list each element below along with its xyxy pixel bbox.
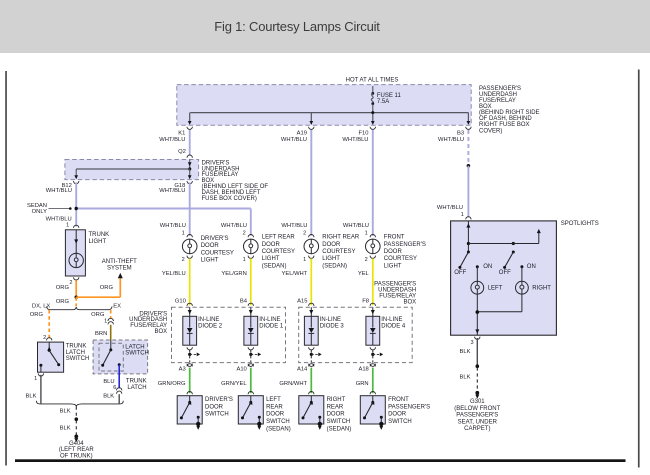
svg-text:LEFT: LEFT bbox=[488, 285, 503, 291]
svg-text:YEL: YEL bbox=[358, 271, 370, 277]
svg-text:GRN: GRN bbox=[356, 381, 369, 387]
svg-text:IN-LINE: IN-LINE bbox=[381, 317, 402, 323]
svg-text:(SEDAN): (SEDAN) bbox=[327, 426, 352, 432]
svg-text:WHT/BLU: WHT/BLU bbox=[159, 137, 185, 143]
svg-text:TRUNK: TRUNK bbox=[126, 379, 147, 385]
svg-text:G404: G404 bbox=[69, 441, 84, 447]
svg-text:LIGHT: LIGHT bbox=[322, 256, 340, 262]
svg-text:A14: A14 bbox=[297, 367, 308, 373]
svg-text:LIGHT: LIGHT bbox=[89, 239, 107, 245]
svg-text:WHT/BLU: WHT/BLU bbox=[437, 205, 463, 211]
svg-text:PASSENGER'S: PASSENGER'S bbox=[384, 242, 426, 248]
svg-text:GRN/WHT: GRN/WHT bbox=[279, 381, 307, 387]
svg-text:OFF: OFF bbox=[454, 270, 466, 276]
svg-text:DOOR: DOOR bbox=[327, 412, 346, 418]
svg-text:IN-LINE: IN-LINE bbox=[198, 317, 219, 323]
svg-text:DIODE 4: DIODE 4 bbox=[381, 324, 406, 330]
svg-text:SWITCH: SWITCH bbox=[66, 356, 90, 362]
svg-text:(SEDAN): (SEDAN) bbox=[266, 426, 291, 432]
svg-text:2: 2 bbox=[365, 257, 368, 263]
svg-text:WHT/BLU: WHT/BLU bbox=[160, 223, 186, 229]
svg-text:(BELOW FRONT: (BELOW FRONT bbox=[454, 406, 500, 412]
svg-text:WHT/BLU: WHT/BLU bbox=[281, 137, 307, 143]
svg-text:7.5A: 7.5A bbox=[377, 99, 389, 105]
svg-text:GRN/ORG: GRN/ORG bbox=[158, 381, 186, 387]
svg-text:RIGHT REAR: RIGHT REAR bbox=[322, 235, 360, 241]
svg-text:SWITCH: SWITCH bbox=[266, 419, 290, 425]
svg-text:WHT/BLU: WHT/BLU bbox=[342, 137, 368, 143]
svg-text:ORG: ORG bbox=[56, 299, 70, 305]
svg-text:WHT/BLU: WHT/BLU bbox=[343, 223, 369, 229]
svg-text:(SEDAN): (SEDAN) bbox=[322, 263, 347, 269]
svg-text:HOT AT ALL TIMES: HOT AT ALL TIMES bbox=[346, 77, 399, 83]
svg-text:GRN/YEL: GRN/YEL bbox=[221, 381, 247, 387]
svg-text:SWITCH: SWITCH bbox=[205, 412, 229, 418]
svg-text:ANTI-THEFT: ANTI-THEFT bbox=[102, 259, 137, 265]
svg-text:Q2: Q2 bbox=[178, 149, 186, 155]
svg-text:REAR: REAR bbox=[266, 404, 283, 410]
svg-text:1: 1 bbox=[365, 230, 368, 236]
svg-text:F8: F8 bbox=[362, 299, 369, 305]
svg-text:IN-LINE: IN-LINE bbox=[320, 317, 341, 323]
svg-text:WHT/BLU: WHT/BLU bbox=[46, 188, 72, 194]
svg-text:CARPET): CARPET) bbox=[464, 426, 490, 432]
svg-text:EX: EX bbox=[113, 304, 121, 310]
svg-text:OFF: OFF bbox=[499, 270, 511, 276]
svg-text:SWITCH: SWITCH bbox=[388, 419, 412, 425]
svg-text:BLK: BLK bbox=[103, 394, 114, 400]
svg-text:A10: A10 bbox=[236, 367, 246, 373]
svg-text:WHT/BLU: WHT/BLU bbox=[281, 223, 307, 229]
svg-text:DOOR: DOOR bbox=[388, 412, 407, 418]
svg-text:A19: A19 bbox=[297, 130, 307, 136]
svg-text:BLK: BLK bbox=[26, 393, 37, 399]
svg-text:TRUNK: TRUNK bbox=[89, 232, 110, 238]
svg-text:A18: A18 bbox=[358, 367, 368, 373]
svg-text:DOOR: DOOR bbox=[384, 249, 403, 255]
svg-text:BLK: BLK bbox=[460, 374, 471, 380]
svg-text:YEL/GRN: YEL/GRN bbox=[221, 271, 246, 277]
svg-text:DIODE 2: DIODE 2 bbox=[198, 324, 223, 330]
svg-text:PASSENGER'S: PASSENGER'S bbox=[456, 413, 498, 419]
svg-text:COURTESY: COURTESY bbox=[201, 250, 234, 256]
svg-text:LATCH: LATCH bbox=[125, 344, 144, 350]
svg-text:PASSENGER'S: PASSENGER'S bbox=[388, 404, 430, 410]
svg-text:DRIVER'S: DRIVER'S bbox=[205, 397, 233, 403]
svg-text:1: 1 bbox=[104, 318, 107, 324]
svg-text:G10: G10 bbox=[175, 299, 186, 305]
svg-text:FRONT: FRONT bbox=[384, 235, 405, 241]
svg-text:(LEFT REAR: (LEFT REAR bbox=[59, 447, 95, 453]
svg-text:WHT/BLU: WHT/BLU bbox=[159, 188, 185, 194]
svg-text:1: 1 bbox=[303, 257, 306, 263]
svg-text:LATCH: LATCH bbox=[127, 385, 146, 391]
svg-text:OF TRUNK): OF TRUNK) bbox=[60, 453, 93, 459]
svg-text:2: 2 bbox=[43, 335, 46, 341]
svg-text:1: 1 bbox=[34, 376, 37, 382]
svg-text:LIGHT: LIGHT bbox=[262, 256, 280, 262]
svg-text:F10: F10 bbox=[359, 130, 369, 136]
svg-text:B4: B4 bbox=[240, 299, 248, 305]
svg-text:BRN: BRN bbox=[95, 331, 107, 337]
svg-text:SYSTEM: SYSTEM bbox=[107, 266, 132, 272]
svg-text:ORG: ORG bbox=[91, 312, 105, 318]
svg-text:SPOTLIGHTS: SPOTLIGHTS bbox=[561, 221, 599, 227]
svg-text:REAR: REAR bbox=[327, 404, 344, 410]
svg-text:COURTESY: COURTESY bbox=[262, 249, 295, 255]
svg-text:6: 6 bbox=[113, 385, 116, 391]
svg-text:2: 2 bbox=[243, 230, 246, 236]
svg-text:LEFT REAR: LEFT REAR bbox=[262, 235, 296, 241]
svg-text:SWITCH: SWITCH bbox=[125, 351, 149, 357]
svg-text:DIODE 3: DIODE 3 bbox=[320, 324, 345, 330]
svg-text:2: 2 bbox=[69, 280, 72, 286]
svg-text:FUSE BOX COVER): FUSE BOX COVER) bbox=[202, 196, 257, 202]
svg-text:LEFT: LEFT bbox=[266, 397, 281, 403]
svg-text:TRUNK: TRUNK bbox=[66, 344, 87, 350]
svg-text:A3: A3 bbox=[179, 367, 186, 373]
svg-text:DOOR: DOOR bbox=[322, 242, 341, 248]
svg-text:ONLY: ONLY bbox=[32, 209, 47, 215]
svg-text:K1: K1 bbox=[178, 130, 185, 136]
svg-text:ORG: ORG bbox=[30, 312, 44, 318]
svg-text:WHT/BLU: WHT/BLU bbox=[221, 223, 247, 229]
svg-text:A15: A15 bbox=[297, 299, 307, 305]
svg-text:2: 2 bbox=[182, 257, 185, 263]
svg-text:FUSE 11: FUSE 11 bbox=[377, 93, 402, 99]
svg-text:DOOR: DOOR bbox=[266, 412, 285, 418]
svg-text:1: 1 bbox=[182, 230, 185, 236]
svg-text:1: 1 bbox=[66, 223, 69, 229]
svg-text:B3: B3 bbox=[457, 130, 464, 136]
svg-text:(SEDAN): (SEDAN) bbox=[262, 263, 287, 269]
svg-text:3: 3 bbox=[470, 340, 473, 346]
svg-text:DOOR: DOOR bbox=[262, 242, 281, 248]
svg-text:BOX: BOX bbox=[155, 329, 168, 335]
svg-text:ORG: ORG bbox=[56, 285, 70, 291]
svg-text:SWITCH: SWITCH bbox=[327, 419, 351, 425]
svg-text:SEDAN: SEDAN bbox=[27, 203, 47, 209]
svg-text:COURTESY: COURTESY bbox=[384, 256, 417, 262]
svg-text:DX, LX: DX, LX bbox=[32, 304, 50, 310]
svg-text:FRONT: FRONT bbox=[388, 397, 409, 403]
svg-text:BLK: BLK bbox=[60, 408, 71, 414]
svg-text:YEL/BLU: YEL/BLU bbox=[162, 271, 186, 277]
svg-text:BLK: BLK bbox=[460, 349, 471, 355]
svg-text:2: 2 bbox=[303, 230, 306, 236]
svg-text:ON: ON bbox=[483, 264, 492, 270]
svg-text:ORG: ORG bbox=[100, 285, 114, 291]
svg-text:ON: ON bbox=[527, 264, 536, 270]
svg-text:Fig 1: Courtesy Lamps Circuit: Fig 1: Courtesy Lamps Circuit bbox=[214, 19, 380, 34]
svg-text:SEAT, UNDER: SEAT, UNDER bbox=[458, 419, 498, 425]
svg-text:LATCH: LATCH bbox=[66, 350, 85, 356]
svg-text:DOOR: DOOR bbox=[205, 404, 224, 410]
svg-text:LIGHT: LIGHT bbox=[201, 258, 219, 264]
svg-text:DRIVER'S: DRIVER'S bbox=[201, 236, 229, 242]
svg-text:BLK: BLK bbox=[60, 426, 71, 432]
svg-text:BLU: BLU bbox=[103, 379, 114, 385]
svg-text:RIGHT: RIGHT bbox=[532, 285, 551, 291]
svg-text:DOOR: DOOR bbox=[201, 243, 220, 249]
svg-text:RIGHT: RIGHT bbox=[327, 397, 346, 403]
svg-text:LIGHT: LIGHT bbox=[384, 263, 402, 269]
svg-text:YEL/WHT: YEL/WHT bbox=[282, 271, 308, 277]
svg-text:BOX: BOX bbox=[404, 299, 417, 305]
svg-text:IN-LINE: IN-LINE bbox=[259, 317, 280, 323]
svg-text:WHT/BLU: WHT/BLU bbox=[46, 216, 72, 222]
svg-text:COURTESY: COURTESY bbox=[322, 249, 355, 255]
svg-text:WHT/BLU: WHT/BLU bbox=[438, 137, 464, 143]
svg-text:1: 1 bbox=[461, 212, 464, 218]
svg-text:G301: G301 bbox=[470, 399, 485, 405]
svg-text:1: 1 bbox=[243, 257, 246, 263]
svg-text:COVER): COVER) bbox=[479, 128, 502, 134]
svg-text:DIODE 1: DIODE 1 bbox=[259, 324, 284, 330]
